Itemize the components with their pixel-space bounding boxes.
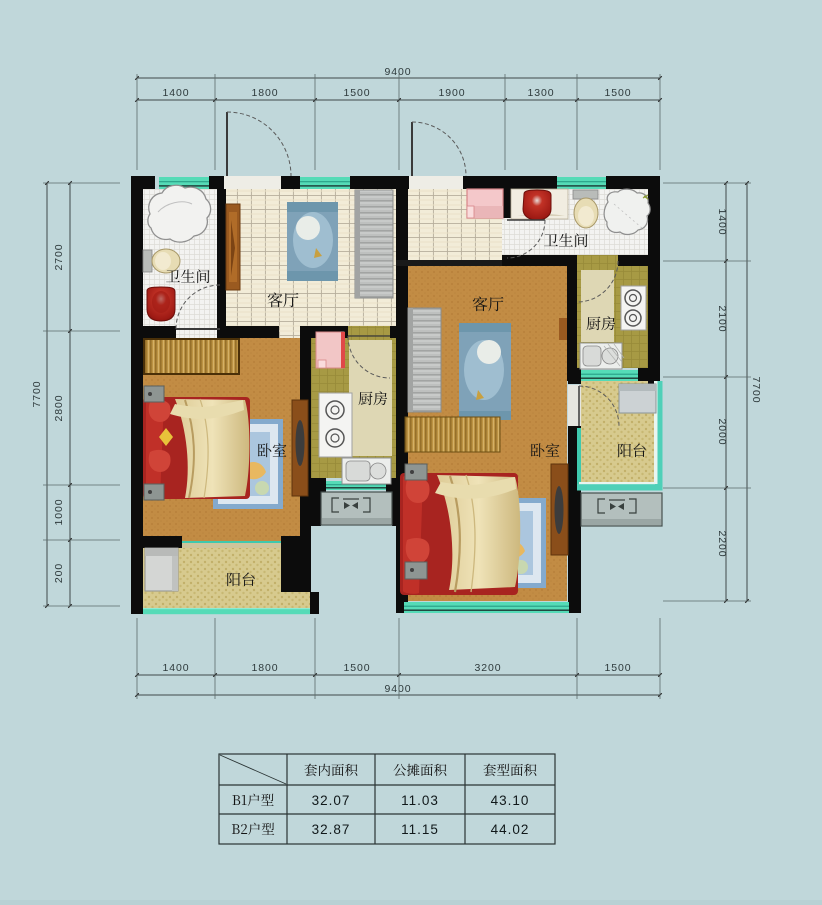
svg-text:11.03: 11.03 [401, 793, 439, 808]
svg-text:1400: 1400 [163, 87, 190, 99]
svg-text:3200: 3200 [475, 662, 502, 674]
svg-text:1300: 1300 [528, 87, 555, 99]
svg-text:1500: 1500 [344, 87, 371, 99]
svg-text:1400: 1400 [716, 209, 728, 236]
svg-text:32.87: 32.87 [312, 822, 351, 837]
svg-text:1400: 1400 [163, 662, 190, 674]
svg-text:1800: 1800 [252, 87, 279, 99]
svg-text:1500: 1500 [605, 87, 632, 99]
svg-text:1500: 1500 [605, 662, 632, 674]
svg-text:9400: 9400 [385, 66, 412, 78]
svg-text:2700: 2700 [53, 244, 65, 271]
svg-text:2200: 2200 [716, 531, 728, 558]
svg-text:2800: 2800 [53, 395, 65, 422]
svg-text:2100: 2100 [716, 306, 728, 333]
svg-text:7700: 7700 [31, 381, 43, 408]
svg-text:2000: 2000 [716, 419, 728, 446]
svg-text:7700: 7700 [750, 377, 762, 404]
svg-text:1000: 1000 [53, 499, 65, 526]
svg-text:9400: 9400 [385, 683, 412, 695]
svg-text:44.02: 44.02 [491, 822, 530, 837]
svg-text:11.15: 11.15 [401, 822, 439, 837]
svg-text:200: 200 [53, 563, 65, 583]
svg-text:1800: 1800 [252, 662, 279, 674]
svg-text:1500: 1500 [344, 662, 371, 674]
svg-text:1900: 1900 [439, 87, 466, 99]
svg-text:32.07: 32.07 [312, 793, 351, 808]
svg-text:43.10: 43.10 [491, 793, 530, 808]
